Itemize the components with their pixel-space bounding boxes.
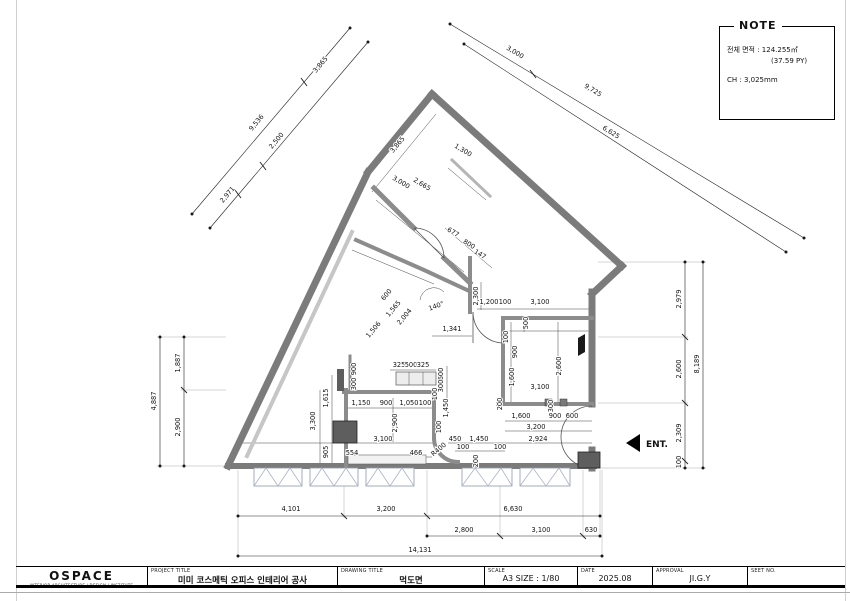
dimension-label: 900: [511, 346, 519, 359]
dimension-label: 3,200: [527, 423, 546, 431]
drawing-title-cell: DRAWING TITLE 먹도면: [338, 567, 485, 586]
dimension-label: 8,189: [693, 355, 701, 374]
dimension-label: 450: [449, 435, 462, 443]
dimension-label: 2,924: [529, 435, 548, 443]
dimension-label: 100: [435, 421, 443, 434]
dimension-label: 100: [499, 298, 512, 306]
drawing-sheet: ENT. 2,9719,5362,5003,8653,0009,7256,625…: [0, 0, 850, 601]
company-cell: OSPACE INTERIOR ARCHITECTURE | DESIGN | …: [16, 567, 148, 586]
dimension-label: 2,800: [455, 526, 474, 534]
dimension-label: 3,200: [377, 505, 396, 513]
dimension-label: 1,615: [322, 389, 330, 408]
entrance-arrow-icon: [626, 434, 640, 452]
dimension-label: 500: [522, 317, 530, 330]
dimension-label: 900: [350, 363, 358, 376]
dimension-label: 800: [462, 238, 477, 251]
dimension-label: 905: [322, 446, 330, 459]
title-block: OSPACE INTERIOR ARCHITECTURE | DESIGN | …: [16, 566, 845, 586]
dimension-label: 100: [419, 399, 432, 407]
sheet-no-label: SEET NO.: [751, 568, 776, 574]
dimension-label: 2,971: [218, 185, 236, 205]
dimension-label: 147: [473, 248, 488, 261]
dimension-label: 3,100: [374, 435, 393, 443]
dimension-label: 3,100: [531, 298, 550, 306]
dimension-label: 2,500: [267, 131, 285, 151]
dimension-label: 325: [417, 361, 430, 369]
note-area: 전체 면적 : 124.255㎡: [727, 45, 828, 56]
dimension-label: 140°: [427, 300, 445, 313]
window-strip: [462, 468, 512, 486]
dimension-label: 1,600: [512, 412, 531, 420]
windows: [254, 468, 570, 486]
window-strip: [520, 468, 570, 486]
dimension-label: 3,000: [505, 44, 525, 61]
window-strip: [366, 468, 414, 486]
dimension-label: 1,600: [508, 368, 516, 387]
dimension-label: 3,100: [531, 383, 550, 391]
dimension-label: 2,979: [675, 290, 683, 309]
note-ceiling-height: CH : 3,025mm: [727, 75, 828, 86]
date-value: 2025.08: [578, 574, 652, 583]
dimension-label: 14,131: [408, 546, 431, 554]
dimension-label: 3,865: [311, 55, 329, 75]
dimension-label: 466: [410, 449, 423, 457]
note-title: NOTE: [734, 19, 782, 32]
dimension-label: 630: [585, 526, 598, 534]
dimension-label: 600: [437, 368, 445, 381]
note-box: NOTE 전체 면적 : 124.255㎡ (37.59 PY) CH : 3,…: [719, 26, 835, 120]
project-title-cell: PROJECT TITLE 미미 코스메틱 오피스 인테리어 공사: [148, 567, 338, 586]
dimension-label: 2,900: [174, 418, 182, 437]
dimension-label: 677: [446, 226, 461, 239]
outer-walls: [228, 94, 622, 468]
column: [578, 452, 600, 468]
entrance-label: ENT.: [646, 440, 668, 450]
dimension-label: 900: [380, 399, 393, 407]
dimension-label: 600: [379, 287, 393, 302]
dimension-label: 1,341: [443, 325, 462, 333]
dimension-label: 3,100: [532, 526, 551, 534]
dimension-labels: 2,9719,5362,5003,8653,0009,7256,6252,979…: [150, 44, 701, 554]
note-body: 전체 면적 : 124.255㎡ (37.59 PY) CH : 3,025mm: [720, 27, 834, 86]
dimension-label: 2,600: [555, 357, 563, 376]
dimension-label: 9,725: [583, 82, 603, 99]
dimension-label: 1,050: [400, 399, 419, 407]
dimension-label: 325: [393, 361, 406, 369]
dimension-label: 6,630: [504, 505, 523, 513]
dimension-label: 300: [547, 400, 555, 413]
dimension-label: R400: [430, 441, 448, 458]
glass-panel: [578, 334, 585, 356]
dimension-label: 500: [405, 361, 418, 369]
dimension-label: 4,887: [150, 392, 158, 411]
column: [333, 421, 357, 443]
entrance-marker: ENT.: [626, 434, 668, 452]
approval-cell: APPROVAL JI.G.Y: [653, 567, 748, 586]
approval-value: JI.G.Y: [653, 574, 747, 583]
dimension-label: 2,600: [675, 360, 683, 379]
scale-cell: SCALE A3 SIZE : 1/80: [485, 567, 578, 586]
dimension-label: 1,200: [480, 298, 499, 306]
sheet-edge-rule: [0, 592, 850, 593]
dimension-label: 2,309: [675, 424, 683, 443]
dimension-label: 100: [494, 443, 507, 451]
dimension-label: 100: [502, 331, 510, 344]
dimension-label: 100: [675, 456, 683, 469]
window-strip: [310, 468, 358, 486]
date-cell: DATE 2025.08: [578, 567, 653, 586]
dimension-label: 300: [350, 378, 358, 391]
dimension-label: 600: [566, 412, 579, 420]
interior-dimension-lines: [240, 114, 592, 466]
dimension-label: 1,150: [352, 399, 371, 407]
dimension-label: 200: [472, 455, 480, 468]
dimension-label: 9,536: [247, 113, 265, 133]
dimension-label: 1,506: [364, 320, 382, 340]
title-block-bottom-rule: [16, 585, 845, 588]
dimension-label: 3,865: [388, 135, 406, 155]
dimension-label: 2,900: [391, 414, 399, 433]
dimension-label: 4,101: [282, 505, 301, 513]
door-arc-middle: [473, 312, 504, 343]
dimension-label: 2,665: [412, 176, 432, 193]
dimension-label: 200: [496, 398, 504, 411]
note-area-py: (37.59 PY): [727, 56, 828, 67]
scale-value: A3 SIZE : 1/80: [485, 574, 577, 583]
dimension-label: 3,000: [391, 174, 411, 191]
dimension-label: 554: [346, 449, 359, 457]
dimension-label: 2,004: [395, 307, 413, 327]
dimension-label: 1,450: [442, 399, 450, 418]
dimension-label: 100: [431, 388, 439, 401]
dimension-label: 6,625: [601, 124, 621, 141]
sheet-no-cell: SEET NO.: [748, 567, 844, 586]
dimension-label: 3,300: [309, 412, 317, 431]
dimension-label: 1,887: [174, 354, 182, 373]
dimension-label: 900: [549, 412, 562, 420]
dimension-label: 1,300: [453, 142, 473, 159]
window-strip: [254, 468, 302, 486]
dimension-label: 100: [457, 443, 470, 451]
dimension-label: 1,450: [470, 435, 489, 443]
company-name: OSPACE: [16, 569, 147, 583]
